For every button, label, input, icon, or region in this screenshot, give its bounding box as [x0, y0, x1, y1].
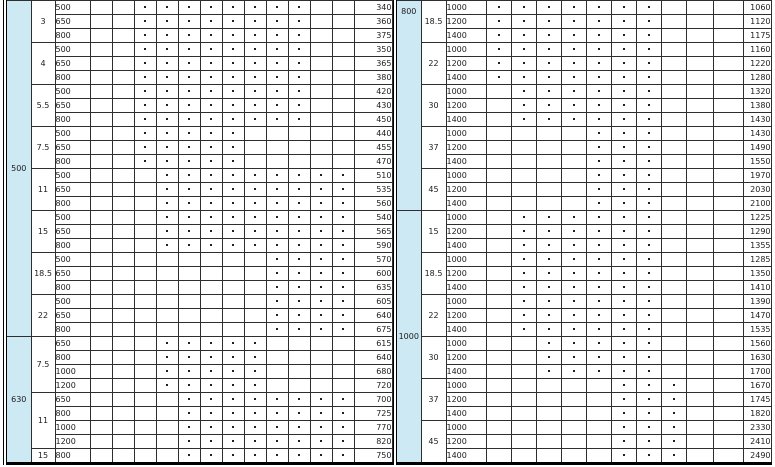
frame-size-cell: [636, 421, 661, 435]
value-cell: 510: [354, 169, 392, 183]
table-row: 12001490: [395, 141, 771, 155]
speed-cell: 1000: [446, 421, 486, 435]
frame-size-cell: [266, 127, 288, 141]
dot-marker: [254, 118, 256, 120]
frame-size-cell: [266, 295, 288, 309]
dot-marker: [188, 132, 190, 134]
speed-cell: 800: [55, 29, 90, 43]
table-row: 4510001970: [395, 169, 771, 183]
frame-size-cell: [586, 281, 611, 295]
table-row: 800380: [5, 71, 392, 85]
dot-marker: [232, 62, 234, 64]
dot-marker: [276, 244, 278, 246]
frame-size-cell: [686, 43, 713, 57]
speed-cell: 650: [55, 15, 90, 29]
frame-size-cell: [156, 15, 178, 29]
power-cell: 15: [31, 211, 55, 253]
dot-marker: [573, 62, 575, 64]
frame-size-cell: [178, 211, 200, 225]
dot-marker: [523, 62, 525, 64]
frame-size-cell: [486, 407, 511, 421]
frame-size-cell: [586, 85, 611, 99]
frame-size-cell: [536, 393, 561, 407]
dot-marker: [673, 398, 675, 400]
dot-marker: [166, 356, 168, 358]
frame-size-cell: [636, 15, 661, 29]
value-cell: 1390: [743, 295, 771, 309]
table-row: 14001535: [395, 323, 771, 337]
frame-size-cell: [561, 127, 586, 141]
frame-size-cell: [112, 1, 134, 15]
power-cell: 37: [421, 379, 446, 421]
table-row: 4500350: [5, 43, 392, 57]
frame-size-cell: [611, 421, 636, 435]
value-cell: 1290: [743, 225, 771, 239]
dot-marker: [623, 412, 625, 414]
group-cell: 1000: [395, 211, 421, 464]
dot-marker: [598, 244, 600, 246]
frame-size-cell: [288, 57, 310, 71]
value-cell: 1820: [743, 407, 771, 421]
frame-size-cell: [561, 393, 586, 407]
frame-size-cell: [661, 99, 686, 113]
dot-marker: [298, 440, 300, 442]
dot-marker: [232, 104, 234, 106]
dot-marker: [144, 76, 146, 78]
frame-size-cell: [244, 57, 266, 71]
dot-marker: [254, 230, 256, 232]
frame-size-cell: [222, 295, 244, 309]
frame-size-cell: [486, 155, 511, 169]
dot-marker: [623, 62, 625, 64]
frame-size-cell: [332, 127, 354, 141]
frame-size-cell: [222, 1, 244, 15]
frame-size-cell: [636, 351, 661, 365]
table-row: 7.5500440: [5, 127, 392, 141]
frame-size-cell: [266, 365, 288, 379]
frame-size-cell: [244, 141, 266, 155]
speed-cell: 1000: [446, 337, 486, 351]
frame-size-cell: [561, 407, 586, 421]
dot-marker: [254, 104, 256, 106]
dot-marker: [342, 188, 344, 190]
frame-size-cell: [561, 15, 586, 29]
dot-marker: [648, 202, 650, 204]
dot-marker: [210, 356, 212, 358]
frame-size-cell: [561, 295, 586, 309]
frame-size-cell: [536, 141, 561, 155]
value-cell: 1700: [743, 365, 771, 379]
frame-size-cell: [511, 421, 536, 435]
frame-size-cell: [332, 267, 354, 281]
dot-marker: [232, 48, 234, 50]
speed-cell: 1200: [446, 393, 486, 407]
frame-size-cell: [156, 71, 178, 85]
frame-size-cell: [200, 253, 222, 267]
frame-size-cell: [511, 85, 536, 99]
dot-marker: [648, 244, 650, 246]
frame-size-cell: [536, 379, 561, 393]
table-row: 14001355: [395, 239, 771, 253]
dot-marker: [598, 216, 600, 218]
spec-table-right: 80018.5100010601200112014001175221000116…: [393, 0, 772, 465]
dot-marker: [298, 20, 300, 22]
dot-marker: [548, 6, 550, 8]
frame-size-cell: [332, 239, 354, 253]
power-cell: 30: [421, 85, 446, 127]
frame-size-cell: [222, 127, 244, 141]
dot-marker: [523, 300, 525, 302]
frame-size-cell: [90, 323, 112, 337]
frame-size-cell: [586, 239, 611, 253]
frame-size-cell: [713, 253, 743, 267]
frame-size-cell: [244, 211, 266, 225]
dot-marker: [232, 454, 234, 456]
frame-size-cell: [222, 309, 244, 323]
speed-cell: 1200: [446, 99, 486, 113]
dot-marker: [298, 286, 300, 288]
frame-size-cell: [244, 71, 266, 85]
dot-marker: [276, 426, 278, 428]
frame-size-cell: [332, 197, 354, 211]
frame-size-cell: [156, 99, 178, 113]
dot-marker: [623, 6, 625, 8]
table-row: 3710001430: [395, 127, 771, 141]
frame-size-cell: [561, 281, 586, 295]
dot-marker: [188, 62, 190, 64]
frame-size-cell: [586, 295, 611, 309]
dot-marker: [623, 426, 625, 428]
frame-size-cell: [200, 323, 222, 337]
frame-size-cell: [611, 197, 636, 211]
frame-size-cell: [310, 239, 332, 253]
frame-size-cell: [310, 309, 332, 323]
frame-size-cell: [536, 239, 561, 253]
frame-size-cell: [661, 421, 686, 435]
frame-size-cell: [611, 141, 636, 155]
frame-size-cell: [511, 379, 536, 393]
frame-size-cell: [266, 43, 288, 57]
frame-size-cell: [90, 169, 112, 183]
dot-marker: [573, 314, 575, 316]
frame-size-cell: [200, 183, 222, 197]
power-cell: 11: [31, 169, 55, 211]
frame-size-cell: [586, 365, 611, 379]
value-cell: 1220: [743, 57, 771, 71]
frame-size-cell: [288, 407, 310, 421]
speed-cell: 1200: [446, 351, 486, 365]
frame-size-cell: [561, 113, 586, 127]
table-row: 650360: [5, 15, 392, 29]
frame-size-cell: [288, 183, 310, 197]
table-row: 800725: [5, 407, 392, 421]
frame-size-cell: [112, 141, 134, 155]
frame-size-cell: [686, 337, 713, 351]
frame-size-cell: [536, 57, 561, 71]
power-cell: 18.5: [421, 1, 446, 43]
frame-size-cell: [586, 43, 611, 57]
value-cell: 1060: [743, 1, 771, 15]
frame-size-cell: [332, 1, 354, 15]
dot-marker: [573, 34, 575, 36]
frame-size-cell: [661, 141, 686, 155]
frame-size-cell: [90, 211, 112, 225]
frame-size-cell: [686, 141, 713, 155]
dot-marker: [573, 342, 575, 344]
value-cell: 380: [354, 71, 392, 85]
frame-size-cell: [288, 309, 310, 323]
frame-size-cell: [200, 239, 222, 253]
frame-size-cell: [561, 365, 586, 379]
dot-marker: [548, 104, 550, 106]
frame-size-cell: [486, 351, 511, 365]
frame-size-cell: [266, 449, 288, 464]
frame-size-cell: [244, 113, 266, 127]
dot-marker: [342, 244, 344, 246]
frame-size-cell: [266, 407, 288, 421]
frame-size-cell: [156, 183, 178, 197]
dot-marker: [498, 48, 500, 50]
frame-size-cell: [200, 57, 222, 71]
table-row: 800675: [5, 323, 392, 337]
table-row: 80018.510001060: [395, 1, 771, 15]
dot-marker: [598, 272, 600, 274]
speed-cell: 1000: [446, 43, 486, 57]
frame-size-cell: [90, 309, 112, 323]
speed-cell: 1400: [446, 281, 486, 295]
frame-size-cell: [611, 295, 636, 309]
dot-marker: [648, 272, 650, 274]
dot-marker: [523, 286, 525, 288]
frame-size-cell: [661, 337, 686, 351]
frame-size-cell: [200, 127, 222, 141]
frame-size-cell: [222, 239, 244, 253]
table-row: 1200720: [5, 379, 392, 393]
table-row: 1000680: [5, 365, 392, 379]
dot-marker: [232, 230, 234, 232]
value-cell: 600: [354, 267, 392, 281]
dot-marker: [598, 6, 600, 8]
value-cell: 615: [354, 337, 392, 351]
frame-size-cell: [586, 435, 611, 449]
value-cell: 1175: [743, 29, 771, 43]
dot-marker: [573, 244, 575, 246]
frame-size-cell: [288, 295, 310, 309]
frame-size-cell: [713, 71, 743, 85]
frame-size-cell: [200, 15, 222, 29]
dot-marker: [276, 48, 278, 50]
speed-cell: 1200: [446, 141, 486, 155]
frame-size-cell: [112, 309, 134, 323]
frame-size-cell: [713, 365, 743, 379]
frame-size-cell: [288, 43, 310, 57]
dot-marker: [648, 370, 650, 372]
dot-marker: [298, 90, 300, 92]
frame-size-cell: [134, 393, 156, 407]
dot-marker: [232, 342, 234, 344]
frame-size-cell: [288, 211, 310, 225]
table-row: 12001745: [395, 393, 771, 407]
power-cell: 7.5: [31, 127, 55, 169]
frame-size-cell: [332, 225, 354, 239]
dot-marker: [320, 440, 322, 442]
frame-size-cell: [561, 211, 586, 225]
dot-marker: [320, 398, 322, 400]
dot-marker: [342, 202, 344, 204]
frame-size-cell: [222, 71, 244, 85]
dot-marker: [298, 104, 300, 106]
dot-marker: [342, 426, 344, 428]
frame-size-cell: [134, 281, 156, 295]
dot-marker: [598, 286, 600, 288]
frame-size-cell: [686, 113, 713, 127]
dot-marker: [166, 370, 168, 372]
frame-size-cell: [511, 449, 536, 464]
table-row: 14001175: [395, 29, 771, 43]
frame-size-cell: [266, 113, 288, 127]
frame-size-cell: [156, 407, 178, 421]
frame-size-cell: [310, 169, 332, 183]
frame-size-cell: [288, 29, 310, 43]
frame-size-cell: [90, 379, 112, 393]
frame-size-cell: [310, 197, 332, 211]
frame-size-cell: [90, 15, 112, 29]
frame-size-cell: [611, 239, 636, 253]
dot-marker: [276, 272, 278, 274]
frame-size-cell: [713, 337, 743, 351]
frame-size-cell: [636, 1, 661, 15]
frame-size-cell: [178, 183, 200, 197]
frame-size-cell: [266, 183, 288, 197]
frame-size-cell: [486, 99, 511, 113]
frame-size-cell: [134, 449, 156, 464]
frame-size-cell: [713, 267, 743, 281]
frame-size-cell: [156, 211, 178, 225]
dot-marker: [298, 48, 300, 50]
dot-marker: [623, 48, 625, 50]
frame-size-cell: [310, 155, 332, 169]
dot-marker: [320, 230, 322, 232]
frame-size-cell: [266, 155, 288, 169]
speed-cell: 1400: [446, 71, 486, 85]
frame-size-cell: [178, 267, 200, 281]
frame-size-cell: [310, 127, 332, 141]
frame-size-cell: [90, 421, 112, 435]
dot-marker: [166, 104, 168, 106]
dot-marker: [320, 412, 322, 414]
dot-marker: [623, 384, 625, 386]
dot-marker: [254, 62, 256, 64]
frame-size-cell: [511, 351, 536, 365]
value-cell: 535: [354, 183, 392, 197]
frame-size-cell: [112, 197, 134, 211]
dot-marker: [548, 286, 550, 288]
table-row: 3010001320: [395, 85, 771, 99]
dot-marker: [598, 62, 600, 64]
dot-marker: [144, 160, 146, 162]
frame-size-cell: [310, 113, 332, 127]
table-row: 650535: [5, 183, 392, 197]
dot-marker: [623, 454, 625, 456]
dot-marker: [648, 90, 650, 92]
table-row: 650600: [5, 267, 392, 281]
frame-size-cell: [511, 127, 536, 141]
dot-marker: [254, 356, 256, 358]
dot-marker: [166, 202, 168, 204]
speed-cell: 1400: [446, 365, 486, 379]
table-row: 12001120: [395, 15, 771, 29]
dot-marker: [232, 202, 234, 204]
frame-size-cell: [156, 449, 178, 464]
frame-size-cell: [611, 85, 636, 99]
dot-marker: [188, 342, 190, 344]
dot-marker: [573, 328, 575, 330]
frame-size-cell: [222, 113, 244, 127]
dot-marker: [298, 272, 300, 274]
frame-size-cell: [332, 323, 354, 337]
dot-marker: [573, 118, 575, 120]
frame-size-cell: [112, 239, 134, 253]
speed-cell: 1000: [446, 1, 486, 15]
power-cell: 3: [31, 1, 55, 43]
frame-size-cell: [332, 379, 354, 393]
frame-size-cell: [713, 407, 743, 421]
dot-marker: [498, 62, 500, 64]
frame-size-cell: [156, 253, 178, 267]
dot-marker: [166, 62, 168, 64]
frame-size-cell: [112, 127, 134, 141]
frame-size-cell: [332, 29, 354, 43]
frame-size-cell: [511, 239, 536, 253]
speed-cell: 1000: [446, 379, 486, 393]
frame-size-cell: [586, 351, 611, 365]
frame-size-cell: [511, 71, 536, 85]
frame-size-cell: [713, 43, 743, 57]
frame-size-cell: [611, 15, 636, 29]
dot-marker: [298, 188, 300, 190]
dot-marker: [623, 34, 625, 36]
frame-size-cell: [713, 127, 743, 141]
frame-size-cell: [112, 155, 134, 169]
dot-marker: [276, 174, 278, 176]
speed-cell: 650: [55, 183, 90, 197]
frame-size-cell: [112, 15, 134, 29]
frame-size-cell: [661, 1, 686, 15]
frame-size-cell: [561, 197, 586, 211]
dot-marker: [623, 356, 625, 358]
frame-size-cell: [244, 43, 266, 57]
frame-size-cell: [561, 323, 586, 337]
frame-size-cell: [686, 435, 713, 449]
dot-marker: [623, 286, 625, 288]
frame-size-cell: [536, 267, 561, 281]
frame-size-cell: [156, 127, 178, 141]
dot-marker: [573, 230, 575, 232]
value-cell: 350: [354, 43, 392, 57]
frame-size-cell: [486, 127, 511, 141]
frame-size-cell: [178, 435, 200, 449]
frame-size-cell: [200, 43, 222, 57]
dot-marker: [166, 132, 168, 134]
frame-size-cell: [332, 421, 354, 435]
frame-size-cell: [686, 393, 713, 407]
frame-size-cell: [636, 99, 661, 113]
dot-marker: [144, 20, 146, 22]
dot-marker: [498, 76, 500, 78]
frame-size-cell: [561, 225, 586, 239]
dot-marker: [188, 440, 190, 442]
dot-marker: [573, 300, 575, 302]
